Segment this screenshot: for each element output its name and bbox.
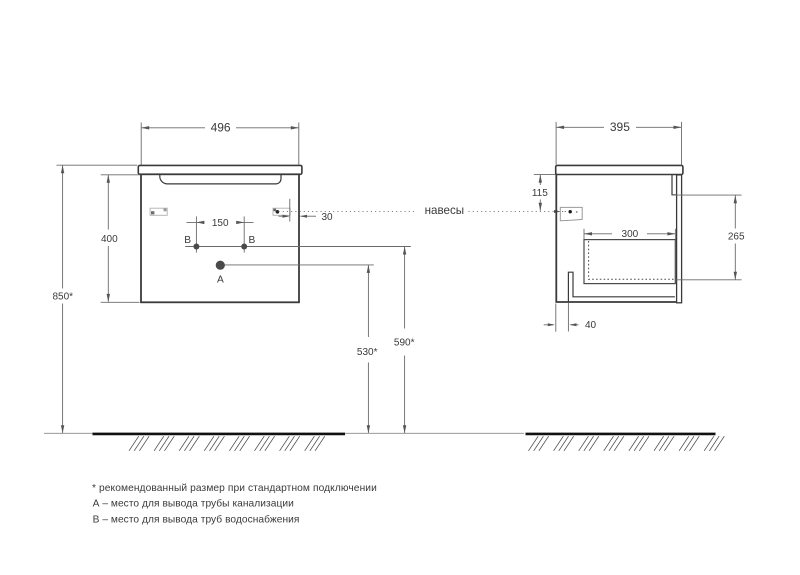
svg-text:* рекомендованный размер при с: * рекомендованный размер при стандартном… xyxy=(92,483,377,494)
svg-text:А: А xyxy=(217,274,224,285)
svg-text:300: 300 xyxy=(622,229,639,240)
svg-text:400: 400 xyxy=(101,234,118,245)
svg-text:850*: 850* xyxy=(53,292,74,303)
svg-text:А – место для вывода трубы кан: А – место для вывода трубы канализации xyxy=(93,498,294,510)
svg-text:115: 115 xyxy=(532,188,548,199)
svg-text:30: 30 xyxy=(321,212,333,223)
svg-text:590*: 590* xyxy=(394,338,415,349)
svg-text:В – место для вывода труб водо: В – место для вывода труб водоснабжения xyxy=(93,514,300,526)
svg-text:навесы: навесы xyxy=(425,204,464,217)
svg-text:395: 395 xyxy=(610,120,630,134)
svg-text:530*: 530* xyxy=(357,347,378,358)
svg-text:496: 496 xyxy=(211,120,231,134)
svg-text:150: 150 xyxy=(212,218,229,229)
svg-text:В: В xyxy=(184,235,191,246)
svg-text:В: В xyxy=(249,235,256,246)
svg-text:40: 40 xyxy=(585,320,597,331)
svg-text:265: 265 xyxy=(728,232,745,243)
